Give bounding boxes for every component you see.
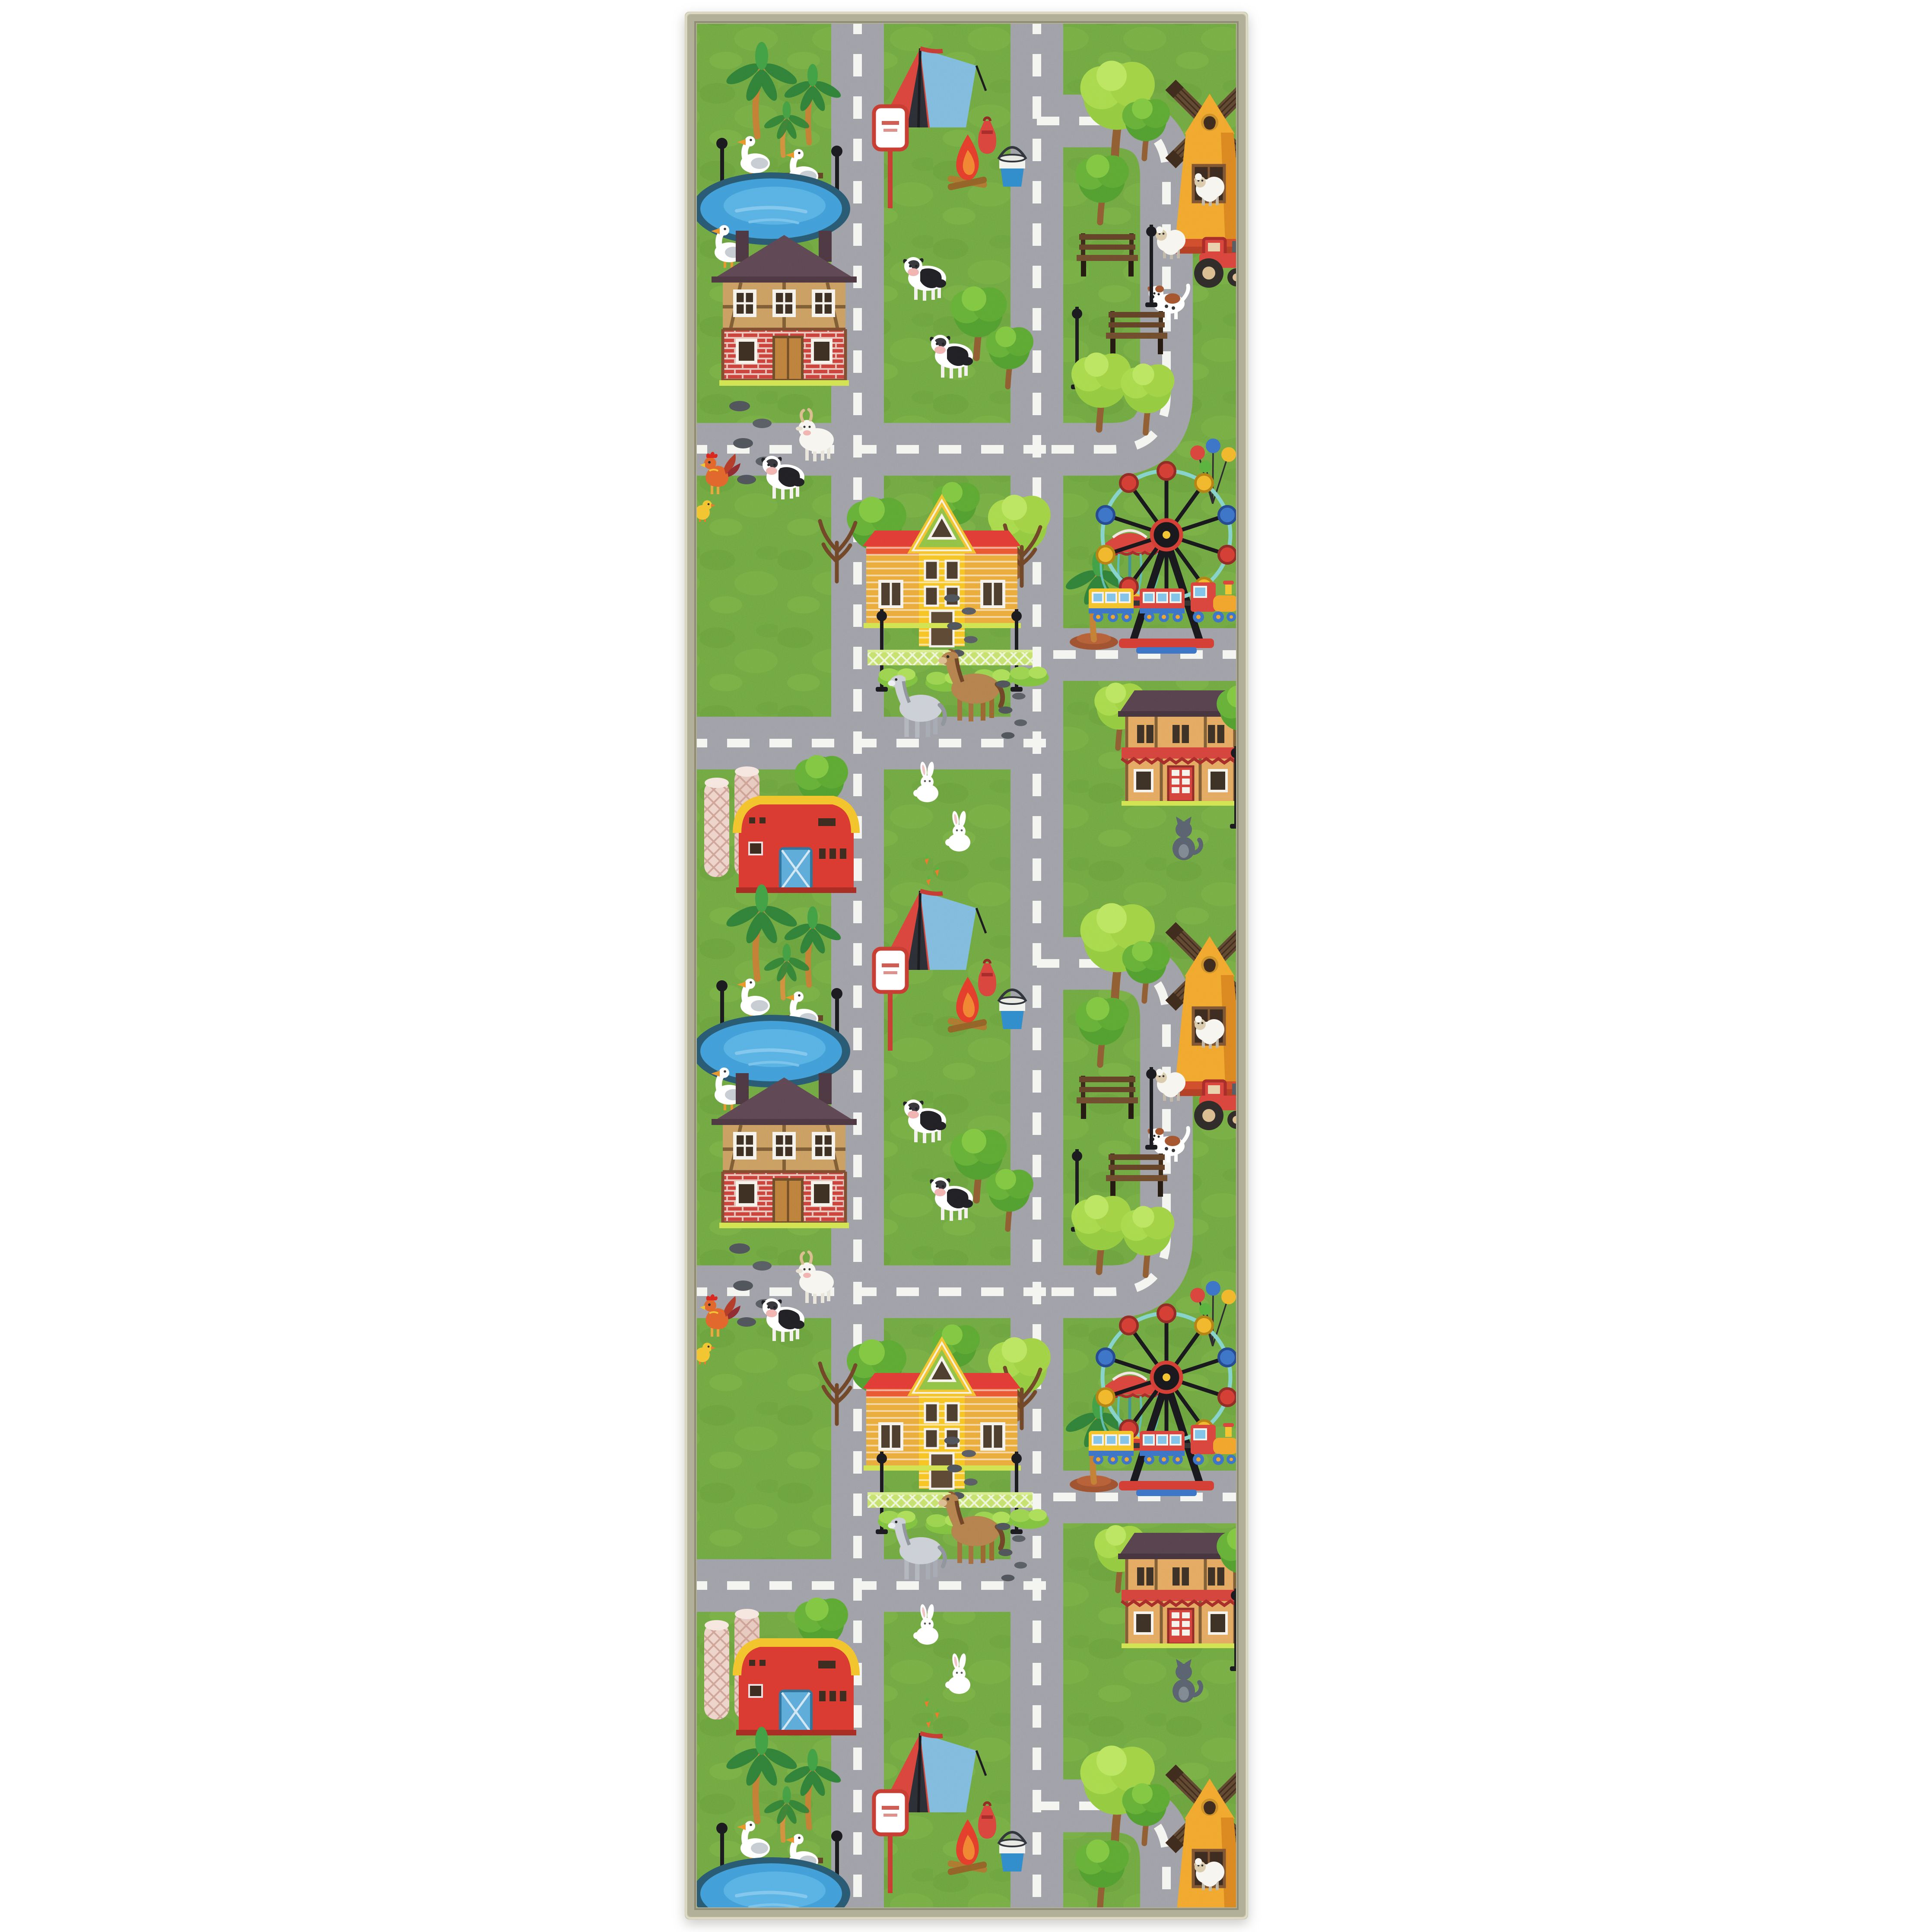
play-rug (685, 12, 1248, 1919)
play-rug-photo: kids play rug runner, farm village road … (685, 12, 1248, 1919)
product-photo-canvas: { "product": { "kind": "kids play rug ru… (0, 0, 1932, 1932)
carpet-texture-overlay (697, 24, 1236, 1907)
